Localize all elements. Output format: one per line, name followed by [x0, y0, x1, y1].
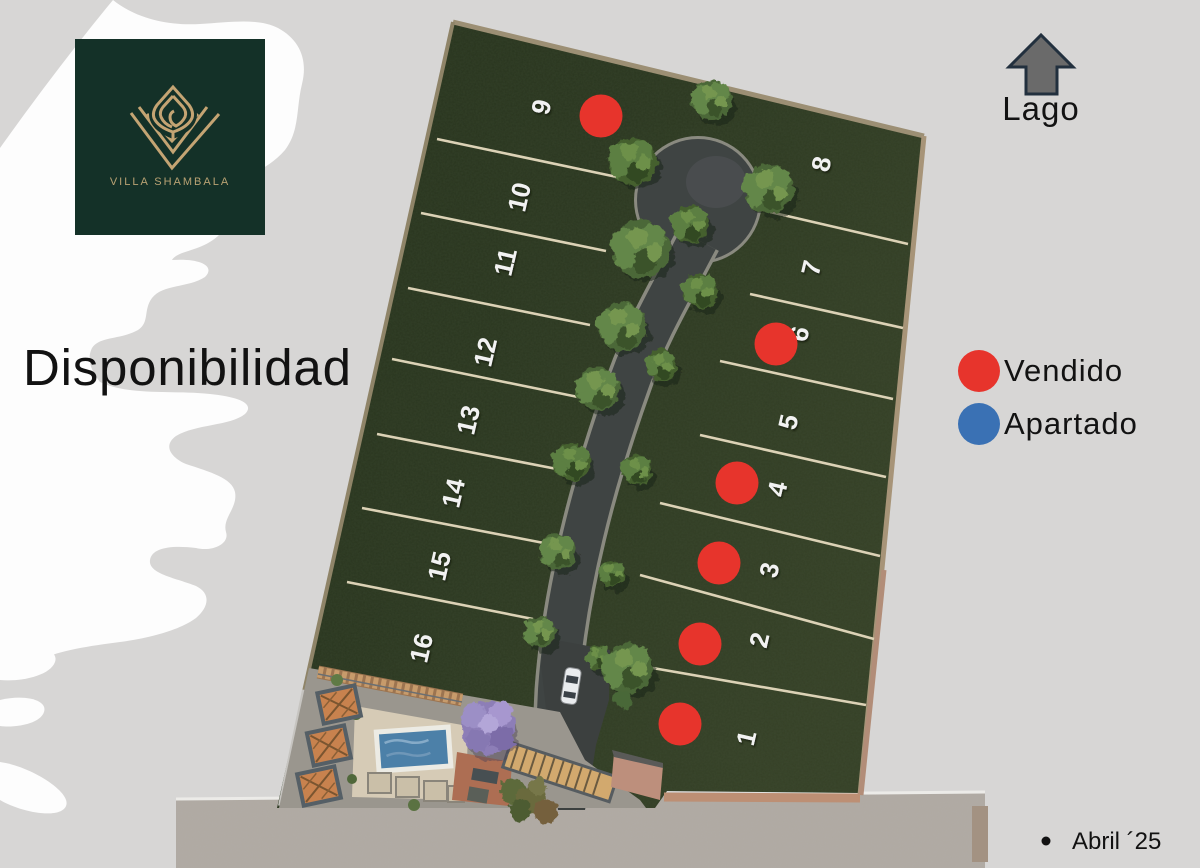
svg-text:Lago: Lago	[1002, 90, 1079, 127]
svg-text:Apartado: Apartado	[1004, 406, 1138, 441]
svg-text:VILLA SHAMBALA: VILLA SHAMBALA	[110, 176, 230, 188]
svg-text:Vendido: Vendido	[1004, 353, 1123, 388]
svg-text:Abril ´25: Abril ´25	[1072, 828, 1161, 855]
svg-text:Disponibilidad: Disponibilidad	[23, 339, 352, 396]
